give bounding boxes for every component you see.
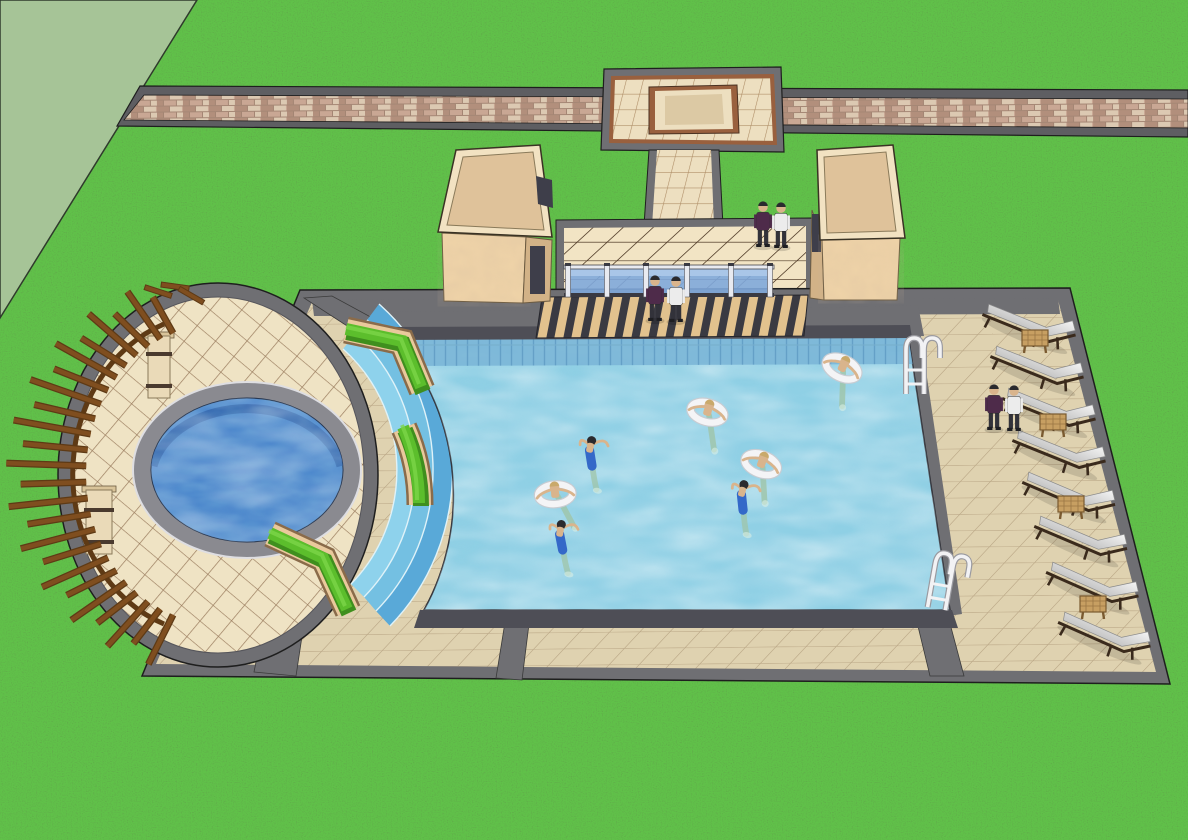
person-arm: [1005, 398, 1008, 412]
person-legs: [650, 303, 654, 319]
railing-post: [565, 263, 571, 297]
person-arm: [772, 215, 775, 229]
person-arm: [661, 288, 664, 302]
person-torso: [649, 286, 662, 304]
person-arm: [682, 289, 685, 303]
person-torso: [988, 395, 1001, 413]
circular-spa-deck: [58, 283, 378, 667]
railing-post: [767, 263, 773, 297]
pavilion-right: [810, 145, 905, 300]
pergola-pillar: [144, 332, 174, 398]
railing-post: [728, 263, 734, 297]
person-arm: [985, 397, 988, 411]
person-arm: [754, 214, 757, 228]
person-legs: [671, 304, 675, 320]
person-torso: [1008, 396, 1021, 414]
person-legs: [758, 229, 762, 245]
person-arm: [787, 215, 790, 229]
pavilion-right-roof: [824, 152, 896, 233]
person-legs: [776, 230, 780, 246]
pavilion-left-wall-texture: [442, 233, 526, 303]
central-plaza: [601, 67, 784, 152]
person-arm: [769, 214, 772, 228]
person-torso: [775, 213, 788, 231]
pergola-slat-face: [6, 463, 86, 466]
plaza-path: [644, 150, 723, 226]
pavilion-right-wall-texture: [822, 238, 900, 300]
plaza-center-panel: [665, 94, 724, 125]
pergola-slat-face: [21, 482, 86, 484]
person-arm: [1000, 397, 1003, 411]
person-torso: [757, 212, 770, 230]
railing-top-rail: [564, 265, 774, 269]
pavilion-left-roof: [447, 152, 544, 230]
pavilion-left: [438, 145, 553, 303]
person-arm: [1020, 398, 1023, 412]
path-tiles: [652, 150, 714, 226]
pool-bottom-coping: [414, 610, 958, 628]
person-arm: [646, 288, 649, 302]
person-legs: [989, 412, 993, 428]
person-arm: [667, 289, 670, 303]
pavilion-left-window: [536, 176, 553, 208]
person-torso: [670, 287, 683, 305]
railing-post: [604, 263, 610, 297]
person-legs: [1009, 413, 1013, 429]
pool-3d-render: [0, 0, 1188, 840]
pavilion-left-door-opening: [530, 246, 545, 294]
railing-glass-highlight: [566, 269, 772, 276]
